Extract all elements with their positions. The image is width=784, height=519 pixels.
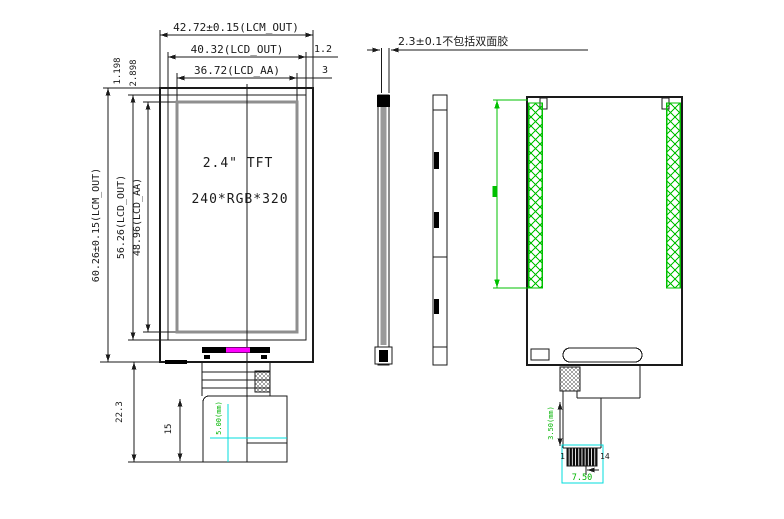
thickness-note: 2.3±0.1不包括双面胶 (398, 34, 508, 48)
dim-aa-gap: 3 (322, 65, 328, 76)
fpc-component-hatched (255, 371, 270, 392)
dim-fpc-length: 22.3 (115, 401, 125, 423)
tape-strip-left (529, 103, 543, 288)
lcd-mechanical-drawing: 42.72±0.15(LCM_OUT) 40.32(LCD_OUT) 36.72… (0, 0, 784, 519)
stiffener-note: 3.50(mm) (547, 406, 555, 440)
tape-strip-right (667, 103, 681, 288)
resolution-label: 240*RGB*320 (191, 192, 288, 207)
side-view-glass (367, 48, 588, 365)
dim-top-gap-lcd: 1.198 (113, 57, 123, 84)
back-frame-outline (527, 97, 682, 365)
dim-width-lcd: 40.32(LCD_OUT) (191, 43, 284, 56)
dim-height-aa: 48.96(LCD_AA) (132, 178, 143, 256)
frame-hook (434, 152, 439, 169)
dim-width-lcm: 42.72±0.15(LCM_OUT) (173, 21, 299, 34)
dim-height-lcd: 56.26(LCD_OUT) (116, 175, 127, 259)
dim-edge-gap: 1.2 (314, 44, 332, 55)
lcd-outline (168, 95, 306, 340)
connector-block (567, 448, 597, 466)
top-tape-block (377, 95, 390, 107)
bottom-slot (563, 348, 642, 362)
dim-fpc-fold: 15 (164, 424, 174, 435)
active-area-outline (177, 102, 297, 332)
panel-size-label: 2.4" TFT (203, 156, 274, 171)
glass-stack-fill (381, 107, 387, 345)
pin-first-label: 1 (560, 452, 565, 461)
tape-dim-label-mark (493, 186, 497, 197)
center-mark (226, 348, 250, 353)
side-view-frame (433, 95, 447, 365)
polarizer-tab-mark (165, 360, 187, 364)
frame-hook (434, 212, 439, 228)
lcm-outline (160, 88, 313, 362)
bonding-pad-hatched (560, 367, 580, 391)
dim-width-aa: 36.72(LCD_AA) (194, 64, 280, 77)
dim-top-gap-aa: 2.898 (129, 59, 139, 86)
fpc-width-note: 5.00(mm) (215, 401, 223, 435)
fpc-tail (560, 365, 640, 483)
frame-hook (434, 299, 439, 314)
pin-last-label: 14 (600, 452, 610, 461)
dim-height-lcm: 60.26±0.15(LCM_OUT) (91, 168, 102, 282)
connector-width-label: 7.50 (572, 473, 592, 483)
back-view (493, 97, 683, 365)
